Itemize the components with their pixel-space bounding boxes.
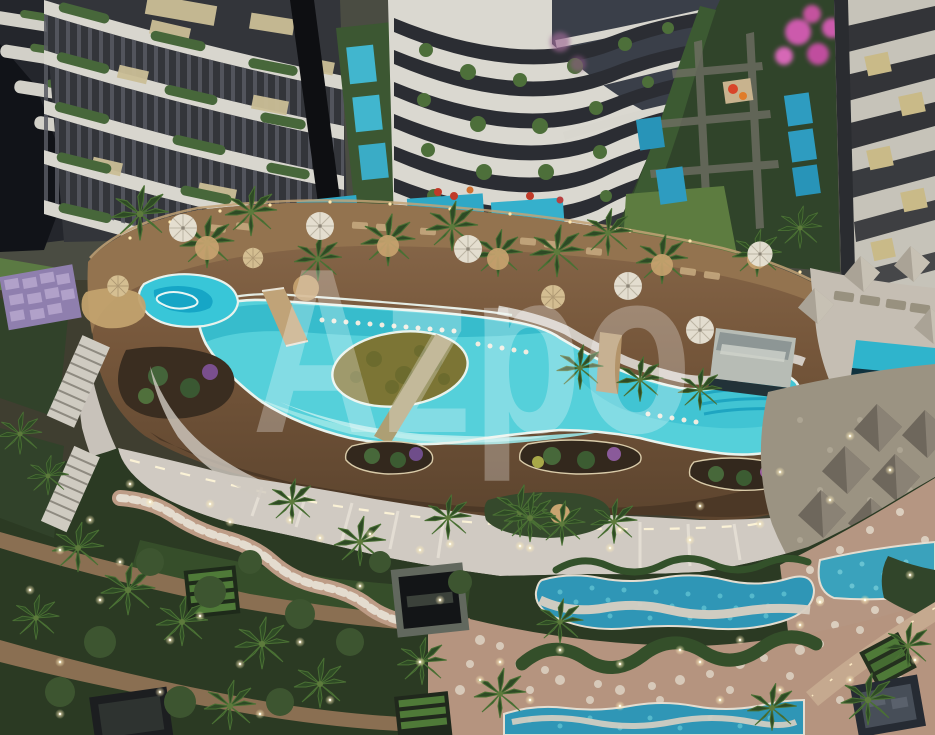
svg-text:Azpo: Azpo [252, 219, 692, 482]
